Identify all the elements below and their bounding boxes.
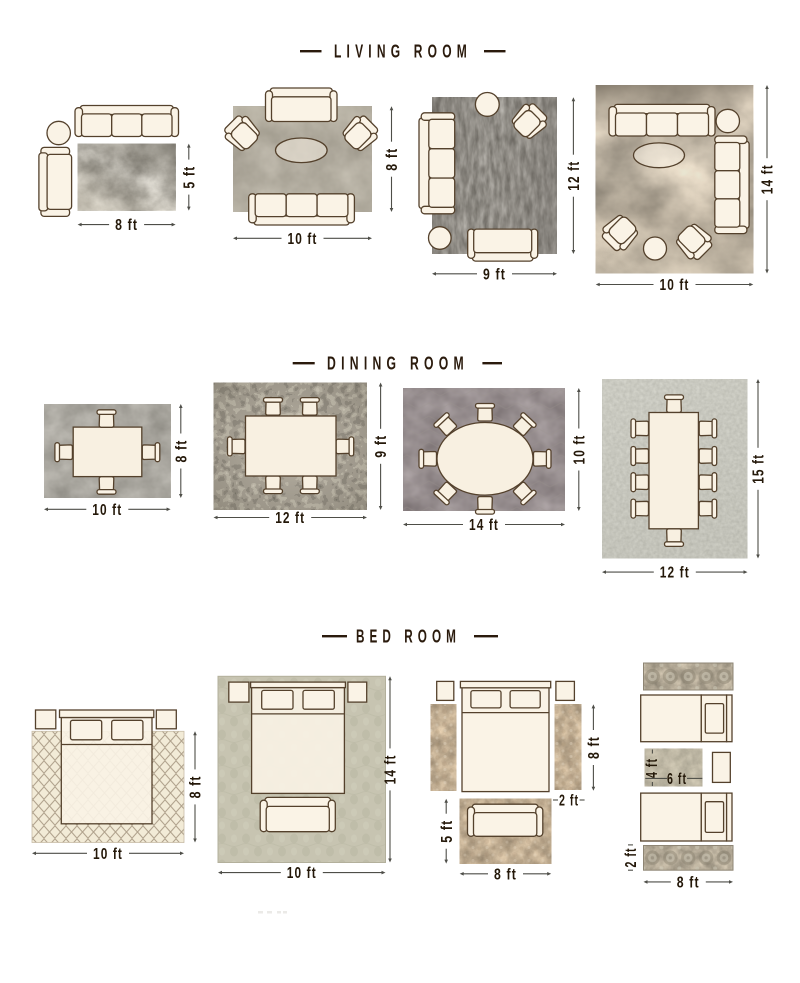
- svg-text:14 ft: 14 ft: [383, 754, 400, 784]
- svg-text:10 ft: 10 ft: [92, 502, 122, 519]
- svg-text:8 ft: 8 ft: [115, 217, 138, 234]
- svg-text:15 ft: 15 ft: [751, 454, 768, 484]
- svg-text:8 ft: 8 ft: [188, 775, 205, 798]
- svg-text:10 ft: 10 ft: [288, 231, 318, 248]
- svg-text:LIVING ROOM: LIVING ROOM: [334, 41, 472, 62]
- svg-text:6 ft: 6 ft: [667, 771, 687, 788]
- svg-text:12 ft: 12 ft: [275, 510, 305, 527]
- svg-text:10 ft: 10 ft: [571, 435, 588, 465]
- svg-text:2 ft: 2 ft: [559, 793, 579, 810]
- svg-text:9 ft: 9 ft: [483, 266, 506, 283]
- svg-text:8 ft: 8 ft: [494, 866, 517, 883]
- svg-text:8 ft: 8 ft: [384, 148, 401, 171]
- svg-text:2 ft: 2 ft: [623, 848, 640, 868]
- svg-text:14 ft: 14 ft: [469, 517, 499, 534]
- svg-text:8 ft: 8 ft: [173, 440, 190, 463]
- svg-text:4 ft: 4 ft: [644, 758, 661, 778]
- svg-text:BED ROOM: BED ROOM: [356, 626, 461, 647]
- svg-text:10 ft: 10 ft: [287, 865, 317, 882]
- svg-text:8 ft: 8 ft: [586, 736, 603, 759]
- svg-text:5 ft: 5 ft: [439, 820, 456, 843]
- svg-text:9 ft: 9 ft: [373, 435, 390, 458]
- svg-text:10 ft: 10 ft: [660, 277, 690, 294]
- svg-text:5 ft: 5 ft: [181, 166, 198, 189]
- svg-text:DINING ROOM: DINING ROOM: [327, 353, 469, 374]
- svg-text:10 ft: 10 ft: [93, 846, 123, 863]
- svg-text:8 ft: 8 ft: [677, 875, 700, 892]
- svg-text:12 ft: 12 ft: [660, 565, 690, 582]
- svg-text:14 ft: 14 ft: [760, 164, 777, 194]
- svg-text:12 ft: 12 ft: [566, 161, 583, 191]
